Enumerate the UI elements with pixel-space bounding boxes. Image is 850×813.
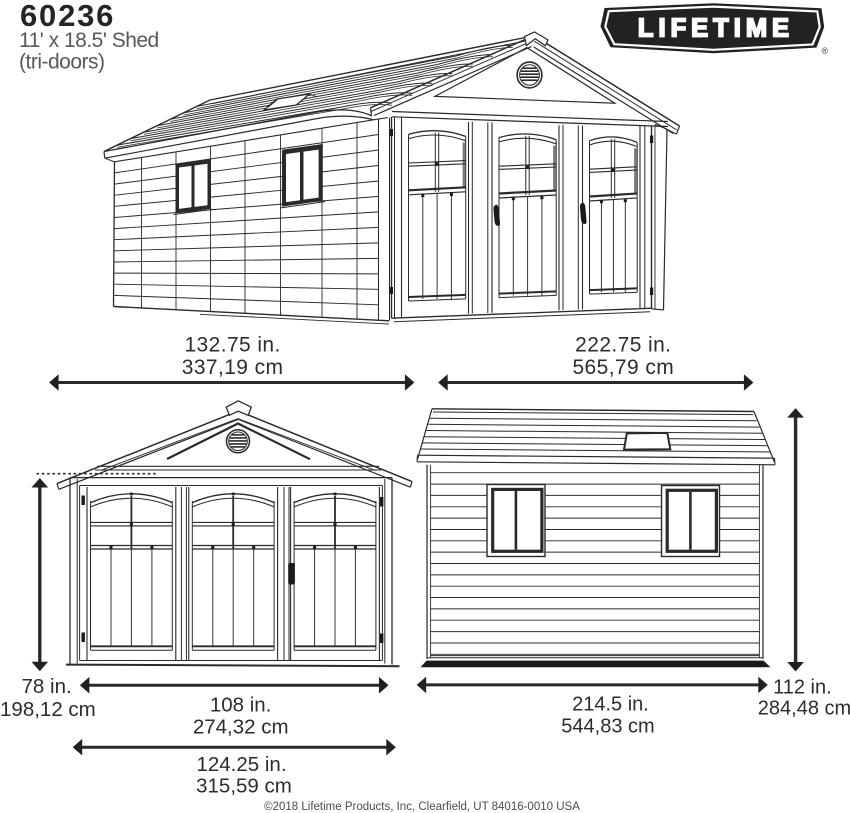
svg-text:565,79 cm: 565,79 cm [572, 356, 674, 379]
svg-text:11' x 18.5' Shed: 11' x 18.5' Shed [19, 29, 159, 52]
svg-text:544,83 cm: 544,83 cm [561, 716, 654, 738]
svg-text:112 in.: 112 in. [773, 677, 832, 699]
svg-text:214.5 in.: 214.5 in. [572, 694, 649, 716]
svg-text:337,19 cm: 337,19 cm [182, 356, 284, 379]
svg-text:222.75 in.: 222.75 in. [575, 334, 671, 357]
svg-text:108 in.: 108 in. [210, 694, 272, 717]
svg-text:LIFETIME: LIFETIME [638, 15, 794, 43]
svg-text:©2018 Lifetime Products, Inc,: ©2018 Lifetime Products, Inc, Clearfield… [264, 801, 580, 813]
svg-text:198,12 cm: 198,12 cm [0, 698, 96, 721]
svg-text:78 in.: 78 in. [22, 675, 72, 698]
svg-text:(tri-doors): (tri-doors) [19, 51, 105, 74]
svg-text:284,48 cm: 284,48 cm [758, 698, 850, 720]
svg-text:274,32 cm: 274,32 cm [193, 716, 289, 739]
svg-text:®: ® [822, 46, 829, 56]
svg-text:132.75 in.: 132.75 in. [184, 334, 280, 357]
svg-text:315,59 cm: 315,59 cm [196, 775, 292, 798]
svg-text:124.25 in.: 124.25 in. [196, 753, 286, 776]
